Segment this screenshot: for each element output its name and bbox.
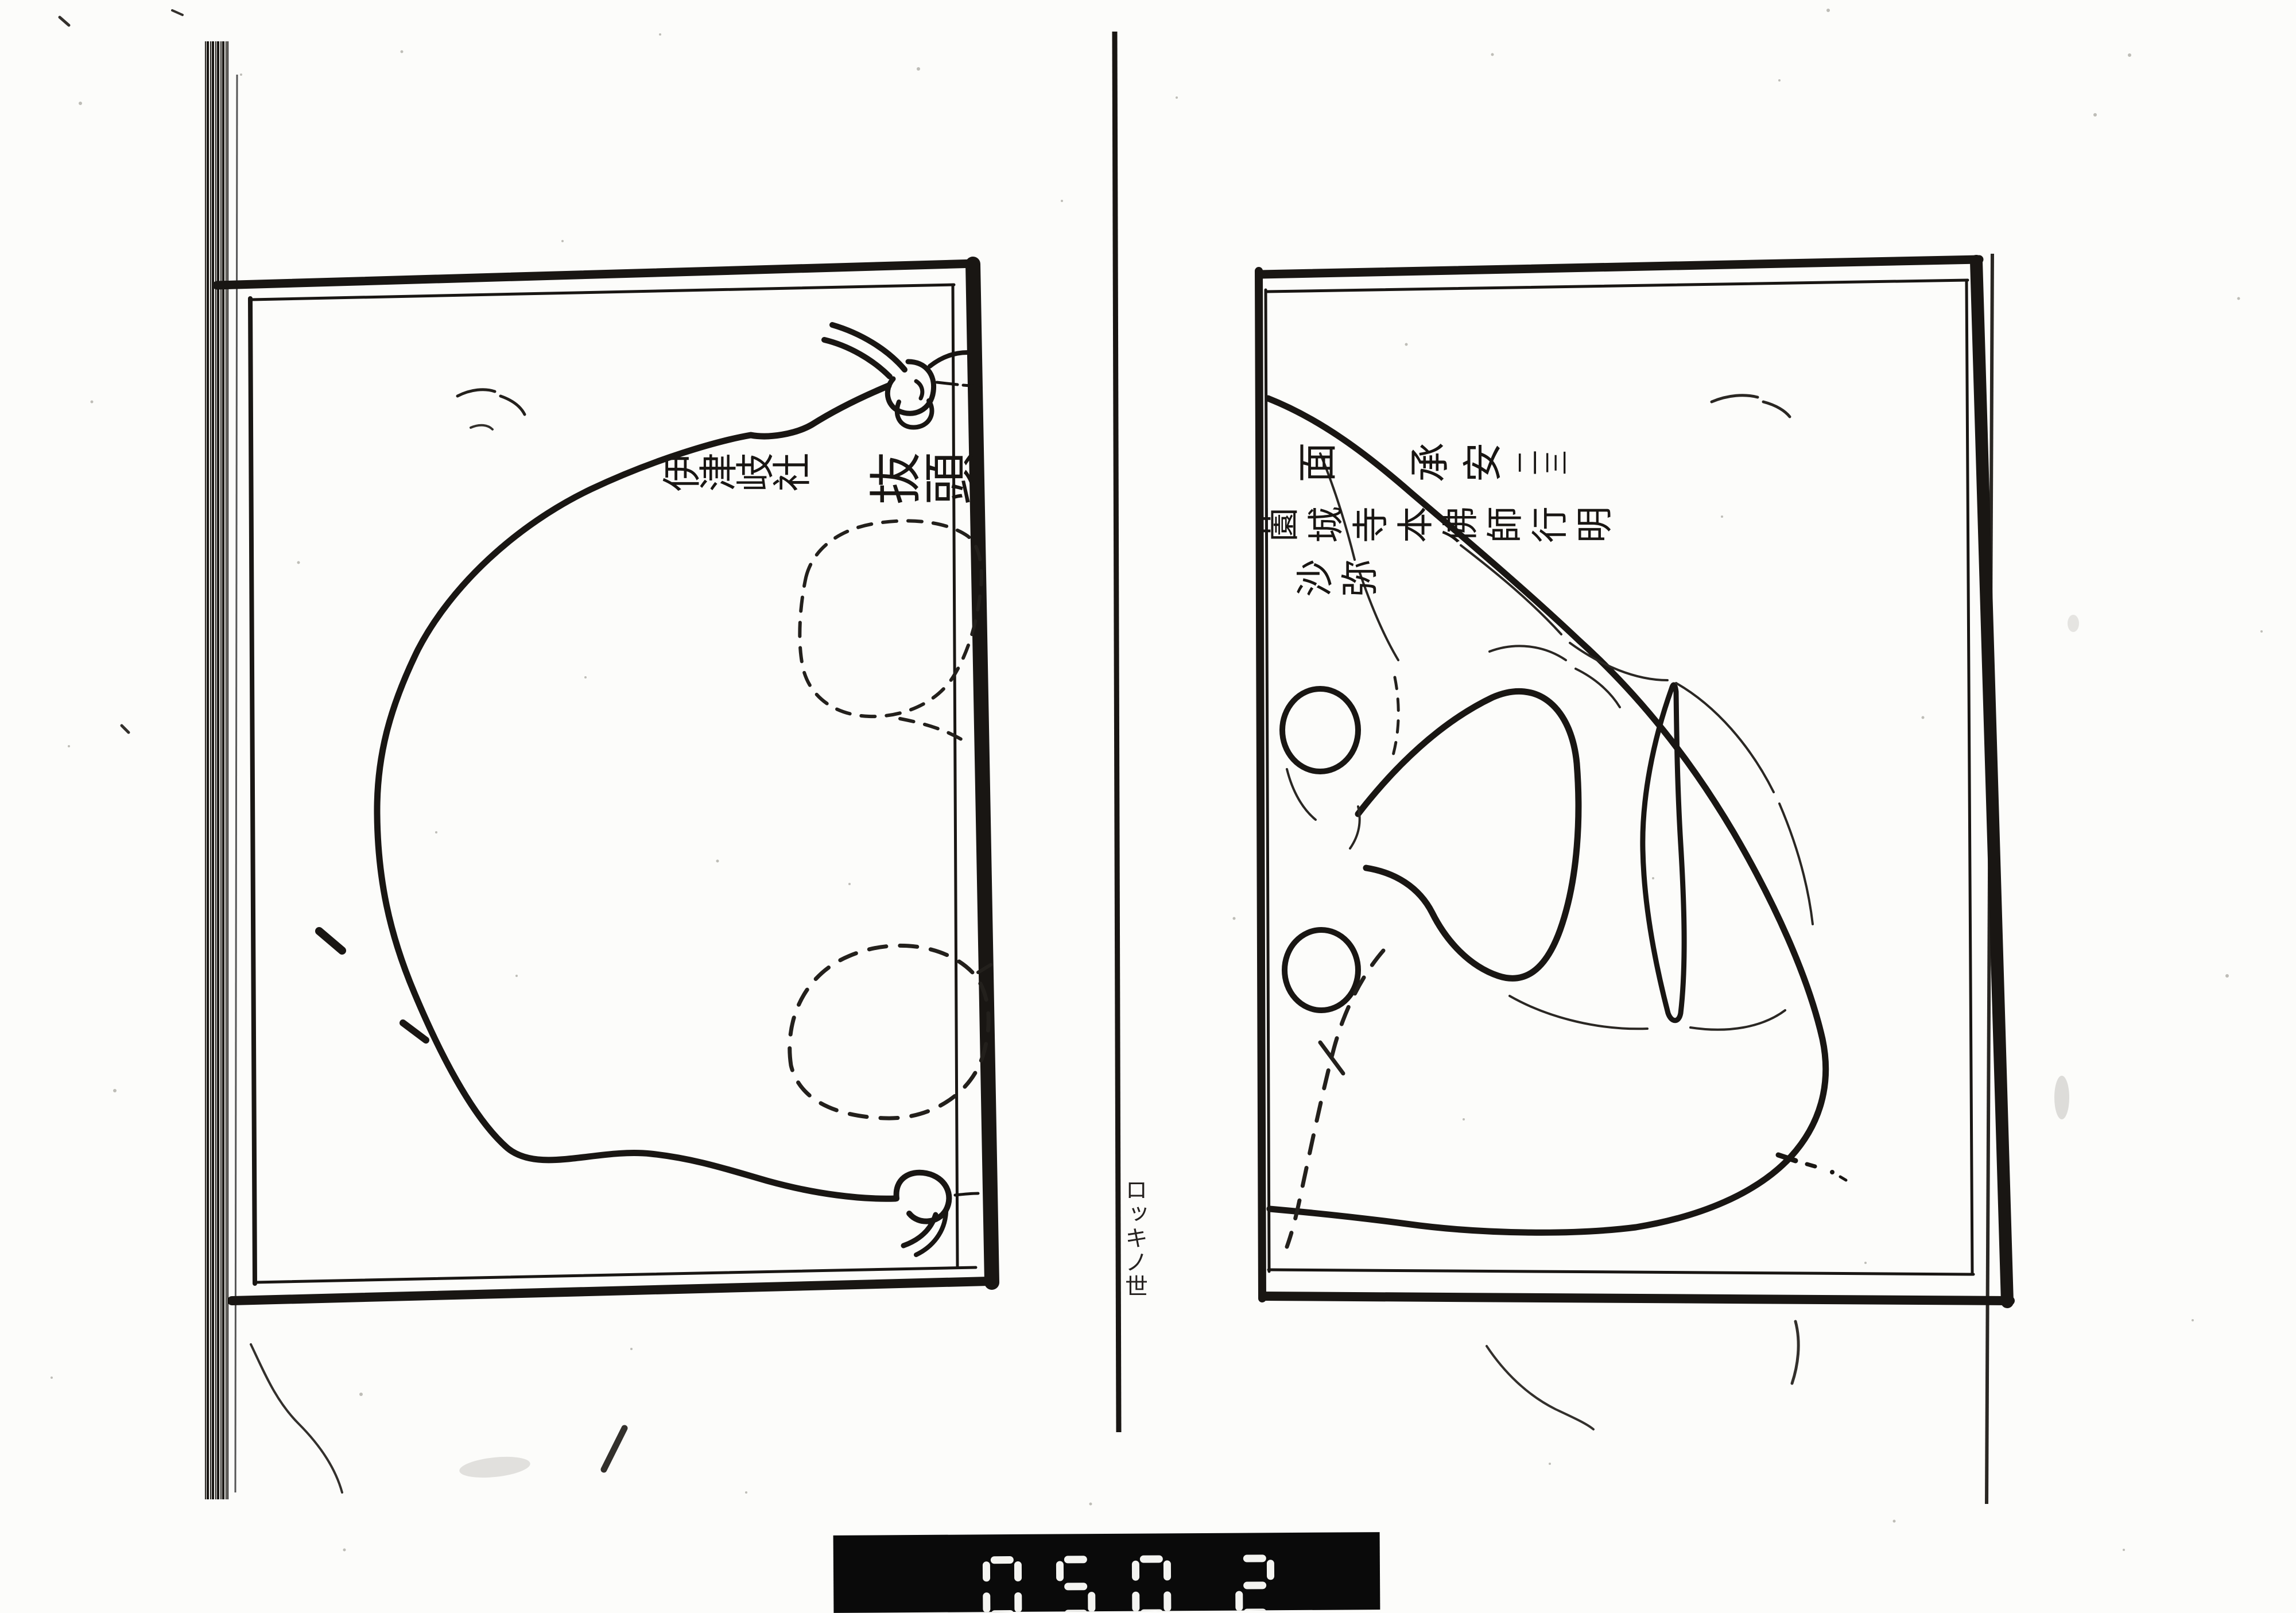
- counter-digit: [1132, 1555, 1172, 1613]
- digit-segment-g: [1243, 1581, 1266, 1589]
- digit-segment-b: [1267, 1560, 1274, 1580]
- frame-counter: [833, 1532, 1380, 1613]
- digit-segment-a: [991, 1556, 1014, 1564]
- right-page-inscription-line1: 面 承安二三: [1274, 436, 1572, 486]
- scanned-book-spread: { "document": { "counter": { "digits": "…: [0, 0, 2296, 1611]
- digit-segment-e: [1235, 1591, 1243, 1611]
- counter-digit: [983, 1556, 1022, 1613]
- digit-segment-b: [1163, 1560, 1171, 1580]
- mask-front-thin-contours: [1287, 396, 1813, 1030]
- digit-segment-f: [1056, 1561, 1064, 1581]
- mask-eye-upper: [1282, 689, 1358, 771]
- mask-nose-mouth: [1358, 691, 1578, 978]
- digit-segment-a: [1064, 1556, 1087, 1563]
- digit-segment-f: [1132, 1561, 1139, 1581]
- gutter-annotation: ロッキノ世: [1123, 1178, 1146, 1298]
- digit-segment-c: [1014, 1592, 1022, 1612]
- digit-segment-a: [1243, 1554, 1266, 1562]
- digit-segment-f: [983, 1561, 990, 1581]
- digit-segment-e: [1132, 1592, 1139, 1612]
- left-page-mask-label: 抜頭: [868, 457, 976, 510]
- gutter-line: [1115, 32, 1119, 1432]
- digit-segment-g: [1064, 1583, 1087, 1590]
- digit-segment-e: [983, 1592, 990, 1612]
- right-page-inscription-line2: 薗城寺本佛師行明: [1262, 510, 1620, 546]
- digit-segment-c: [1088, 1592, 1095, 1612]
- noise-speckles: [51, 9, 2263, 1552]
- book-spine-bar: [204, 41, 237, 1499]
- left-page-frame: [217, 263, 992, 1301]
- inscription-line1-main: 面 承安: [1296, 442, 1514, 489]
- gray-smudges: [166, 615, 2079, 1611]
- digit-segment-d: [1064, 1610, 1087, 1613]
- digit-segment-c: [1163, 1591, 1171, 1611]
- counter-digit: [1235, 1554, 1275, 1613]
- right-page-inscription-line3: 沙弥: [1295, 563, 1384, 600]
- digit-segment-d: [991, 1610, 1014, 1613]
- counter-digit: [1056, 1556, 1096, 1613]
- inscription-line1-date: 二三: [1514, 451, 1572, 480]
- left-page-shrine-label: 伊津岐社: [661, 457, 808, 496]
- right-page-frame: [1259, 259, 2010, 1302]
- right-page-ink-marks: [1778, 1155, 1846, 1180]
- mask-eye-lower: [1285, 930, 1358, 1010]
- digit-segment-a: [1140, 1555, 1163, 1562]
- digit-segment-b: [1014, 1561, 1022, 1581]
- scan-line-art: [0, 0, 2296, 1611]
